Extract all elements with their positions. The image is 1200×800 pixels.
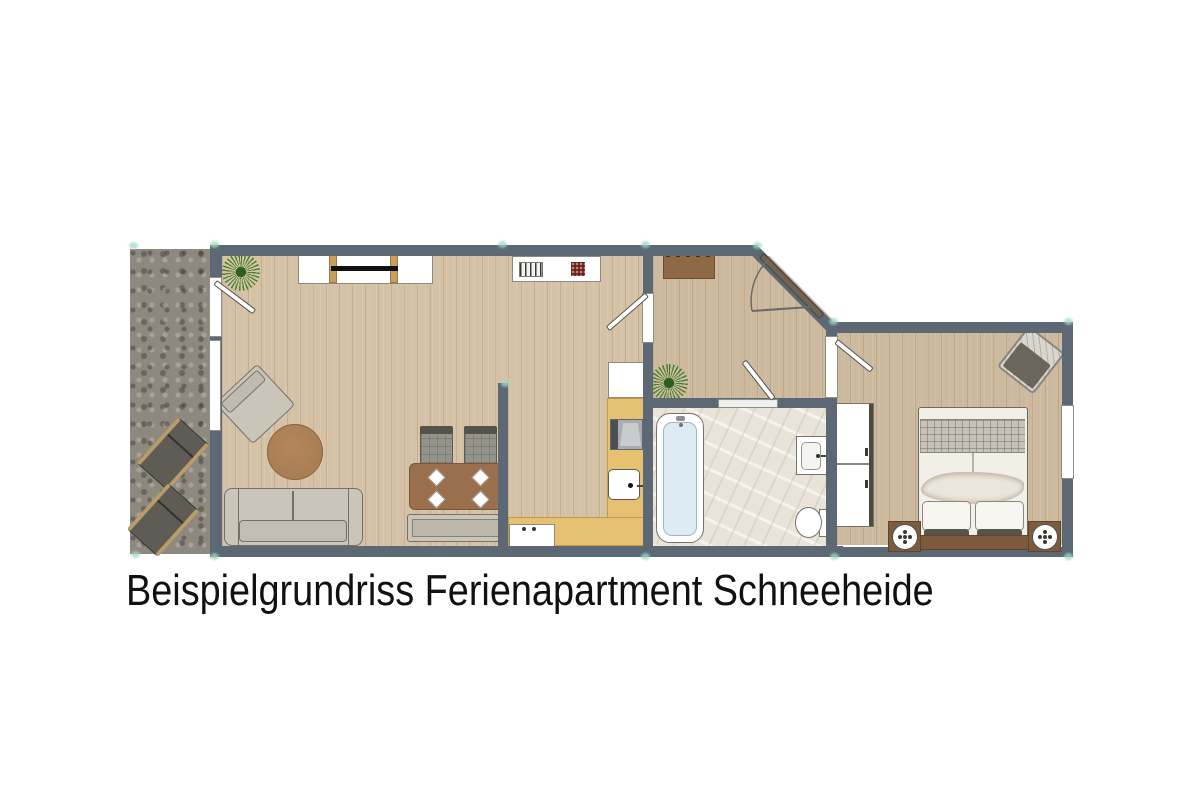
plate-icon — [471, 468, 489, 486]
trivet-icon — [571, 262, 585, 276]
plant-icon — [650, 364, 688, 402]
corner-marker — [498, 241, 507, 248]
corner-marker — [753, 242, 762, 249]
wall-kitchen-partition — [498, 383, 508, 557]
pillow — [975, 501, 1024, 531]
wardrobe-side — [869, 404, 873, 526]
sofa-seat — [239, 520, 347, 542]
dining-chair — [464, 426, 497, 464]
plate-icon — [427, 490, 445, 508]
corner-marker — [830, 553, 839, 560]
tub-basin — [663, 422, 697, 536]
faucet-icon — [628, 483, 633, 488]
kitchen-top-counter — [512, 256, 601, 282]
caption: Beispielgrundriss Ferienapartment Schnee… — [126, 566, 934, 616]
wall-top — [213, 245, 757, 256]
corner-marker — [641, 553, 650, 560]
window-bedroom — [1061, 405, 1074, 479]
corner-marker — [131, 551, 140, 558]
corner-marker — [1064, 553, 1073, 560]
kitchen-sink — [608, 469, 640, 500]
bench-seat — [412, 519, 499, 537]
bathroom-threshold — [718, 399, 778, 408]
corner-marker — [641, 241, 650, 248]
wall-bedroom-top — [826, 322, 1073, 333]
pillow — [922, 501, 971, 531]
stove — [610, 419, 643, 450]
round-coffee-table — [267, 424, 323, 480]
corner-marker — [210, 553, 219, 560]
sofa-cushion-split — [292, 491, 294, 521]
fridge — [608, 362, 644, 398]
headboard — [903, 535, 1041, 550]
corner-marker — [1064, 318, 1073, 325]
knob-icon — [532, 527, 536, 531]
bench — [407, 514, 504, 542]
corner-marker — [210, 241, 219, 248]
crumpled-duvet — [921, 472, 1024, 504]
washbasin — [796, 436, 828, 475]
sofa — [224, 488, 363, 546]
handle-icon — [865, 480, 868, 488]
knob-icon — [522, 527, 526, 531]
wardrobe-divider — [836, 463, 873, 465]
wardrobe — [835, 403, 874, 527]
wall-bottom — [210, 546, 843, 557]
kitchen-base-counter — [509, 524, 555, 547]
toilet-bowl — [795, 507, 822, 538]
lounger-fold — [167, 434, 194, 458]
dining-table — [409, 463, 503, 510]
handle-icon — [865, 448, 868, 456]
corner-marker — [129, 242, 138, 249]
plate-icon — [471, 490, 489, 508]
bed-foot-blanket — [920, 419, 1025, 453]
window-living — [209, 340, 221, 431]
faucet-icon — [816, 454, 820, 458]
double-bed — [918, 407, 1028, 549]
dining-chair — [420, 426, 453, 464]
kitchen-counter-right — [607, 398, 645, 518]
stove-panel — [611, 420, 618, 449]
dish-rack-icon — [519, 262, 543, 277]
plate-icon — [427, 468, 445, 486]
tub-drain-icon — [679, 423, 683, 427]
sofa-armrest — [225, 489, 239, 545]
sofa-armrest — [348, 489, 362, 545]
coat-rack — [663, 253, 715, 279]
nightstand — [1032, 524, 1058, 550]
corner-marker — [829, 318, 838, 325]
plant-icon — [222, 253, 260, 291]
tv-sideboard — [298, 254, 433, 284]
tv-icon — [331, 266, 398, 271]
corner-marker — [501, 380, 510, 387]
lounger-fold — [157, 500, 184, 524]
nightstand — [892, 524, 918, 550]
bathtub — [656, 413, 704, 543]
stove-top — [620, 423, 641, 446]
tub-faucet-icon — [676, 416, 685, 421]
floor-plan: Beispielgrundriss Ferienapartment Schnee… — [0, 0, 1200, 800]
